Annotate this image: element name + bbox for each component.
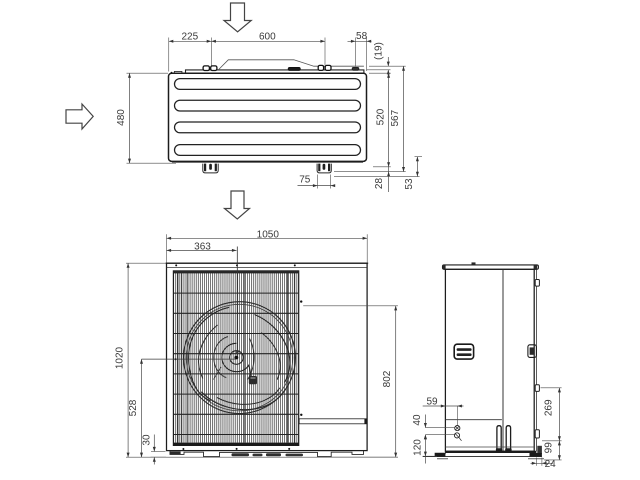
svg-text:53: 53 xyxy=(404,178,415,190)
svg-text:75: 75 xyxy=(299,174,311,185)
svg-text:120: 120 xyxy=(412,439,423,456)
svg-text:600: 600 xyxy=(259,31,276,42)
svg-text:(19): (19) xyxy=(374,42,385,60)
svg-text:30: 30 xyxy=(142,434,153,446)
svg-text:40: 40 xyxy=(412,414,423,426)
svg-text:24: 24 xyxy=(545,459,557,470)
svg-text:58: 58 xyxy=(356,31,368,42)
svg-text:59: 59 xyxy=(426,397,438,408)
svg-text:28: 28 xyxy=(374,178,385,190)
svg-text:528: 528 xyxy=(128,399,139,416)
svg-text:802: 802 xyxy=(382,370,393,387)
svg-text:225: 225 xyxy=(181,31,198,42)
svg-text:480: 480 xyxy=(116,109,127,126)
svg-text:363: 363 xyxy=(194,242,211,253)
svg-text:520: 520 xyxy=(376,108,387,125)
svg-text:269: 269 xyxy=(544,399,555,416)
svg-text:99: 99 xyxy=(544,442,555,454)
svg-text:567: 567 xyxy=(390,109,401,126)
svg-text:1020: 1020 xyxy=(115,346,126,369)
svg-text:1050: 1050 xyxy=(257,229,280,240)
